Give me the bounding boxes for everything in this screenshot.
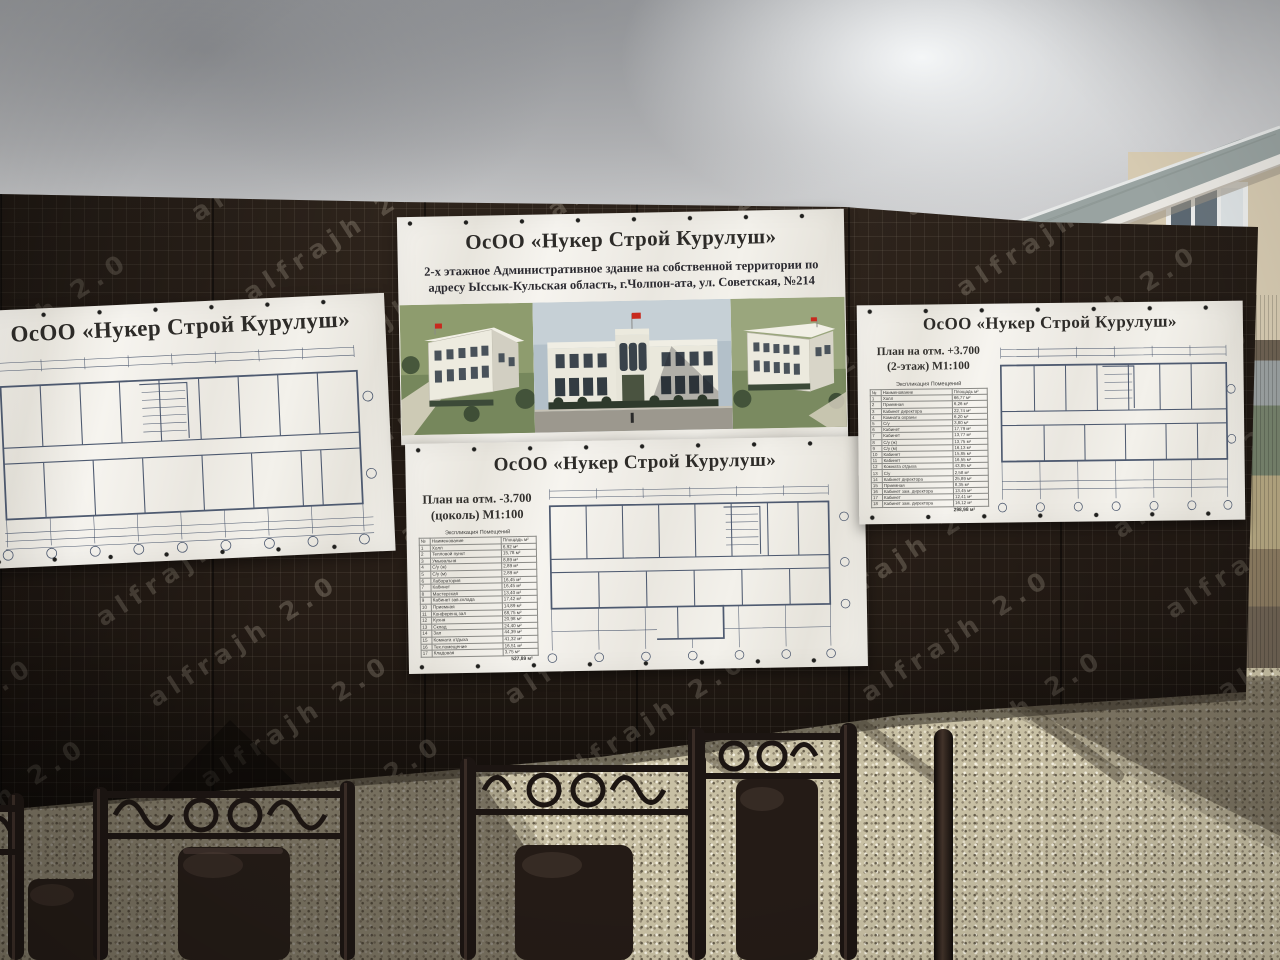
pedestrian	[631, 413, 634, 423]
floorplan-basement	[542, 478, 860, 669]
basement-room-table: № Наименование Площадь м² 1Холл6,92 м² 2…	[419, 536, 539, 658]
chair-back-center	[460, 753, 712, 960]
banner-left: ОсОО «Нукер Строй Курулуш»	[0, 293, 396, 569]
plan-label-line2: (2-этаж) М1:100	[869, 359, 987, 375]
flag	[632, 313, 641, 319]
chair-back-right	[688, 723, 862, 960]
floorplan-second-floor	[993, 339, 1237, 520]
flag	[811, 317, 817, 321]
chair-post-partial	[934, 729, 953, 960]
render-perspective-right	[730, 297, 846, 429]
building-renders	[399, 297, 848, 436]
render-front-facade	[533, 299, 733, 433]
floorplan-first-floor	[0, 334, 390, 566]
render-perspective-left	[400, 303, 535, 436]
plan-label-line2: (цоколь) М1:100	[418, 506, 536, 524]
plan-label-line1: План на отм. +3.700	[869, 344, 987, 360]
banner-second-floor: ОсОО «Нукер Строй Курулуш» План на отм. …	[857, 301, 1246, 525]
banner-basement: ОсОО «Нукер Строй Курулуш» План на отм. …	[405, 436, 868, 674]
flag	[435, 323, 442, 328]
chair-back-left	[93, 781, 363, 960]
banner-main-title: ОсОО «Нукер Строй Курулуш»	[397, 223, 844, 257]
construction-board-photo: alfrajh 2.0 alfrajh 2.0 alfrajh 2.0 alfr…	[0, 0, 1280, 960]
banner-main: ОсОО «Нукер Строй Курулуш» 2-х этажное А…	[397, 209, 848, 446]
second-floor-room-table: № Наименование Площадь м² 1Холл66,77 м² …	[870, 388, 989, 508]
